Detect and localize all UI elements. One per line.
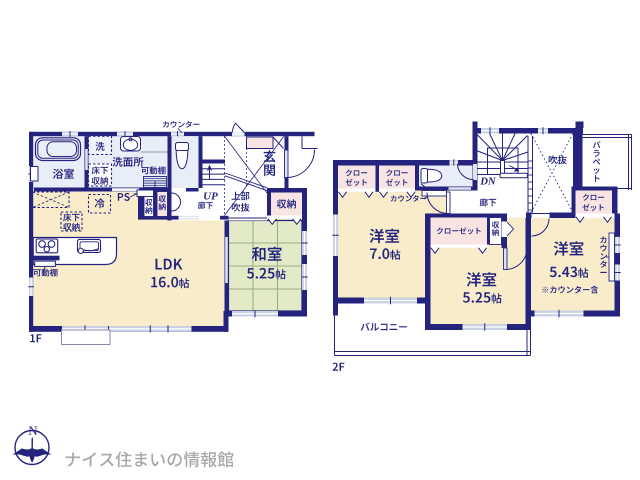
svg-text:N: N bbox=[28, 423, 38, 438]
svg-text:DN: DN bbox=[479, 177, 496, 188]
svg-text:UP: UP bbox=[203, 191, 218, 203]
